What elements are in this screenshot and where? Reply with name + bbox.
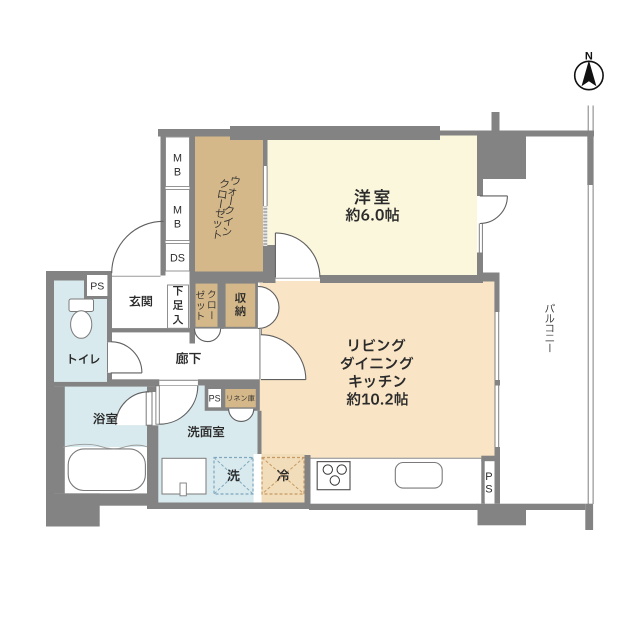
svg-text:DS: DS <box>170 253 185 265</box>
svg-text:PS: PS <box>90 281 104 293</box>
svg-text:B: B <box>174 219 181 231</box>
svg-text:N: N <box>585 51 593 63</box>
svg-text:B: B <box>174 167 181 179</box>
svg-text:S: S <box>485 484 492 496</box>
svg-text:P: P <box>485 471 492 483</box>
svg-text:M: M <box>173 153 182 165</box>
svg-text:M: M <box>173 205 182 217</box>
svg-text:PS: PS <box>209 394 221 404</box>
